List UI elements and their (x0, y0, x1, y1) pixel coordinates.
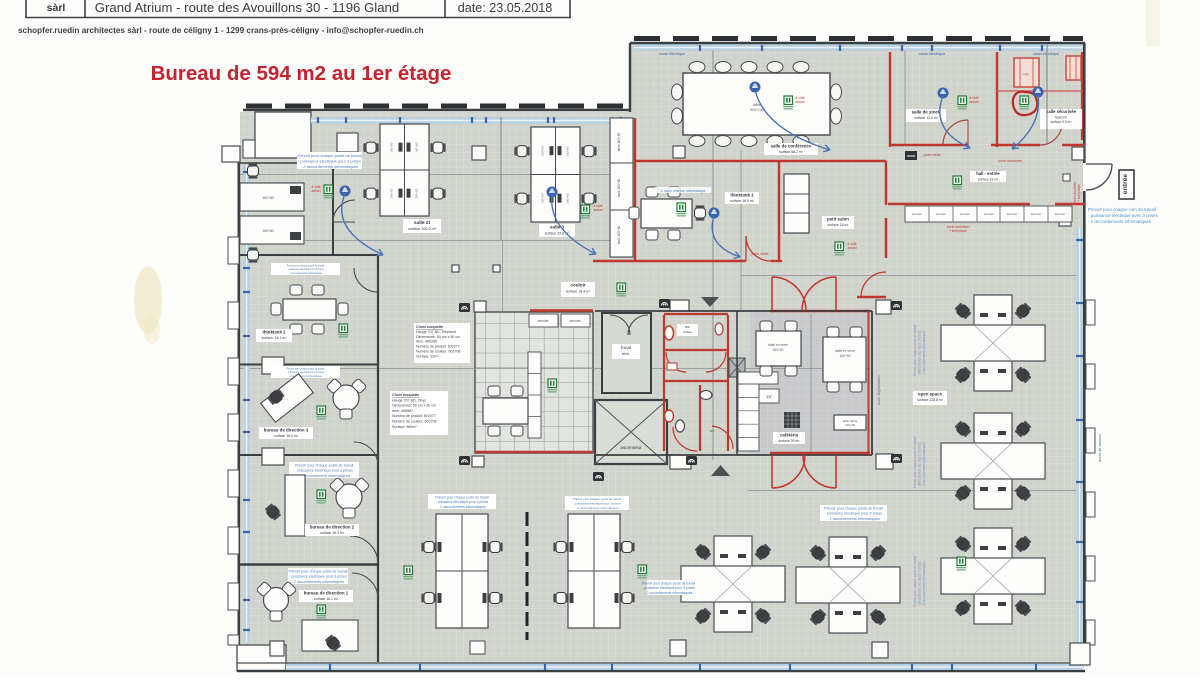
svg-text:Bureau de 594 m2 au 1er étage: Bureau de 594 m2 au 1er étage (151, 62, 452, 85)
svg-text:Hauge 707 BD, Elephant: Hauge 707 BD, Elephant (416, 330, 456, 334)
svg-text:actuel: actuel (795, 100, 804, 104)
svg-text:160+90: 160+90 (840, 354, 851, 358)
svg-text:- alimentation électrique 3 pr: - alimentation électrique 3 prises (917, 330, 921, 376)
svg-text:entrée: entrée (1122, 174, 1129, 195)
svg-text:tech.: tech. (622, 352, 630, 356)
svg-text:surface 12.6 m²: surface 12.6 m² (914, 116, 939, 120)
svg-text:Prévoir pour chaque poste de t: Prévoir pour chaque poste de travail (913, 325, 917, 376)
svg-text:- 2 raccordements informatique: - 2 raccordements informatiques (289, 272, 323, 275)
svg-text:160+80: 160+80 (415, 142, 419, 152)
svg-text:- puissance électrique pour 3: - puissance électrique pour 3 prises (825, 512, 883, 516)
svg-text:armoire: armoire (912, 212, 923, 216)
svg-text:Grand Atrium - route des Avoui: Grand Atrium - route des Avouillons 30 -… (95, 0, 399, 15)
svg-text:Prévoir pour chaque poste de t: Prévoir pour chaque poste de travail (435, 495, 489, 499)
svg-text:160+60: 160+60 (845, 423, 855, 427)
svg-text:- 2 raccordements informatique: - 2 raccordements informatiques (922, 561, 926, 607)
svg-text:surface 58.2 m²: surface 58.2 m² (779, 150, 804, 154)
svg-text:- 2 raccordements informatique: - 2 raccordements informatiques (298, 474, 351, 478)
svg-text:armoire: armoire (1007, 212, 1018, 216)
svg-text:160+80: 160+80 (415, 188, 419, 198)
svg-text:salle sécurisée: salle sécurisée (1046, 109, 1076, 114)
svg-text:surface 18.4 m²: surface 18.4 m² (566, 289, 592, 293)
svg-text:Numéro de produit: 602077: Numéro de produit: 602077 (392, 414, 436, 418)
svg-text:160+80: 160+80 (262, 229, 274, 233)
svg-text:160+90: 160+90 (773, 348, 784, 352)
svg-text:Surface: 560m²: Surface: 560m² (392, 425, 417, 429)
svg-text:- puissance électrique pour 3: - puissance électrique pour 3 prises (287, 268, 325, 271)
svg-text:actuel: actuel (847, 246, 856, 250)
svg-text:Surface: 22m²: Surface: 22m² (416, 354, 439, 358)
svg-text:160+80: 160+80 (541, 146, 545, 156)
svg-text:160+80: 160+80 (262, 196, 274, 200)
svg-text:armoire: armoire (538, 319, 549, 323)
svg-text:- 2 raccordements informatique: - 2 raccordements informatiques (922, 442, 926, 488)
svg-text:Choix moquette: Choix moquette (416, 325, 443, 329)
svg-text:armoire: armoire (1055, 212, 1066, 216)
svg-text:surface 18 m²: surface 18 m² (828, 223, 850, 227)
svg-text:Dimensions: 50 cm x 50 cm: Dimensions: 50 cm x 50 cm (392, 404, 436, 408)
svg-text:surface 23 m²: surface 23 m² (978, 178, 999, 182)
svg-text:- alimentation électrique 3 pr: - alimentation électrique 3 prises (917, 442, 921, 488)
svg-text:- 2 raccordements informatique: - 2 raccordements informatiques (301, 164, 358, 169)
svg-text:Item: 485285: Item: 485285 (416, 340, 437, 344)
svg-text:armoire: armoire (984, 212, 995, 216)
svg-text:Prévoir pour chaque poste de t: Prévoir pour chaque poste de travail (573, 497, 622, 501)
svg-text:invitée: invitée (683, 330, 692, 334)
svg-text:table 160+80: table 160+80 (617, 226, 621, 245)
svg-text:wc: wc (710, 429, 715, 433)
svg-text:rack: rack (1023, 72, 1029, 76)
svg-text:Prévoir pour chaque poste de t: Prévoir pour chaque poste de travail (295, 464, 354, 468)
svg-text:Prévoir pour chaque poste de t: Prévoir pour chaque poste de travail (913, 556, 917, 607)
svg-text:armoire: armoire (1031, 212, 1042, 216)
svg-text:Item: 485587: Item: 485587 (392, 409, 413, 413)
svg-text:table 160+80: table 160+80 (617, 133, 621, 152)
svg-text:porte vitrée: porte vitrée (924, 153, 941, 157)
svg-text:porte vitrée: porte vitrée (752, 252, 769, 256)
svg-text:canal électrique: canal électrique (919, 52, 946, 56)
svg-text:Hauge 707 BD, Onyx: Hauge 707 BD, Onyx (392, 398, 426, 402)
svg-text:date: 23.05.2018: date: 23.05.2018 (458, 1, 553, 15)
svg-text:Choix moquette: Choix moquette (392, 393, 419, 397)
svg-text:cafétéria: cafétéria (780, 432, 799, 437)
svg-text:- alimentation électrique 3 pr: - alimentation électrique 3 prises (917, 561, 921, 607)
svg-text:- puissance électrique pour 3: - puissance électrique pour 3 prises (573, 501, 621, 505)
svg-text:Prévoir pour chaque coin de tr: Prévoir pour chaque coin de travail (1088, 207, 1156, 212)
svg-text:- puissance électrique avec 3: - puissance électrique avec 3 prises (1088, 213, 1159, 218)
svg-text:salle st: salle st (414, 220, 431, 226)
svg-text:actuel: actuel (311, 189, 320, 193)
svg-text:table 160+80: table 160+80 (617, 179, 621, 198)
svg-text:Prévoir pour chaque poste de t: Prévoir pour chaque poste de travail (642, 581, 696, 585)
svg-text:surface 18.9 m²: surface 18.9 m² (730, 199, 755, 203)
svg-text:wc: wc (685, 325, 690, 329)
svg-text:1. sous réserve informatique: 1. sous réserve informatique (660, 189, 705, 193)
svg-text:- puissance électrique pour 3: - puissance électrique pour 3 prises (298, 158, 361, 163)
svg-text:table en verre: table en verre (768, 343, 788, 347)
svg-text:- puissance électrique pour 3: - puissance électrique pour 3 prises (295, 469, 353, 473)
svg-text:+ interphone: + interphone (1077, 184, 1081, 202)
svg-text:- 2 raccordements informatique: - 2 raccordements informatiques (827, 517, 880, 521)
svg-text:surface 16.5 m²: surface 16.5 m² (274, 434, 299, 438)
svg-text:actuel: actuel (593, 208, 602, 212)
svg-text:Numéro de couleur: 602708: Numéro de couleur: 602708 (392, 420, 437, 424)
svg-text:telecom: telecom (1055, 116, 1067, 120)
svg-text:Prévoir pour chaque poste de t: Prévoir pour chaque poste de travail (287, 367, 325, 370)
svg-text:- puissance électrique pour 3: - puissance électrique pour 3 prises (642, 586, 695, 590)
svg-text:- 2 raccordements informatique: - 2 raccordements informatiques (1088, 219, 1152, 224)
svg-text:160+80: 160+80 (390, 188, 394, 198)
svg-text:500+140: 500+140 (750, 108, 763, 112)
svg-text:armoire: armoire (960, 212, 971, 216)
svg-text:canal électrique: canal électrique (1033, 52, 1060, 56)
svg-text:160+80: 160+80 (566, 193, 570, 203)
svg-text:160+80: 160+80 (390, 142, 394, 152)
svg-text:- puissance électrique pour 3: - puissance électrique pour 3 prises (436, 500, 489, 504)
svg-text:armoire: armoire (570, 319, 581, 323)
svg-text:bureau de direction 3: bureau de direction 3 (264, 427, 309, 432)
svg-text:surface 16.3 m²: surface 16.3 m² (320, 531, 345, 535)
svg-text:LV: LV (766, 394, 771, 399)
svg-text:- 2 raccordements informatique: - 2 raccordements informatiques (438, 505, 486, 509)
svg-text:ascenseur: ascenseur (620, 445, 642, 450)
svg-text:surface: 16.1 m²: surface: 16.1 m² (262, 336, 288, 340)
svg-text:couloir: couloir (570, 283, 586, 288)
svg-text:- 2 raccordements informatique: - 2 raccordements informatiques (575, 506, 619, 510)
svg-text:actuel: actuel (969, 100, 978, 104)
svg-text:zone: Digitalisation: zone: Digitalisation (877, 375, 881, 405)
svg-text:schopfer.ruedin architectes sà: schopfer.ruedin architectes sàrl - route… (18, 26, 424, 35)
svg-text:- puissance électrique pour 3: - puissance électrique pour 3 prises (289, 575, 347, 579)
svg-text:Prévoir pour chaque poste de t: Prévoir pour chaque poste de travail (287, 264, 325, 267)
svg-text:+ interphone: + interphone (949, 229, 967, 233)
svg-text:160+80: 160+80 (566, 146, 570, 156)
svg-text:bureau de direction 1: bureau de direction 1 (304, 590, 349, 595)
svg-text:surface 39 m²: surface 39 m² (779, 439, 801, 443)
svg-text:- puissance électrique pour 3: - puissance électrique pour 3 prises (287, 371, 325, 374)
svg-text:thinktank 1: thinktank 1 (730, 192, 754, 197)
svg-text:armoire: armoire (936, 212, 947, 216)
svg-text:- 2 raccordements informatique: - 2 raccordements informatiques (645, 591, 693, 595)
svg-text:petit salon: petit salon (827, 216, 849, 221)
svg-text:Prévoir pour chaque poste de t: Prévoir pour chaque poste de travail (297, 153, 361, 158)
svg-text:Prévoir pour chaque poste de t: Prévoir pour chaque poste de travail (824, 507, 883, 511)
svg-text:surface 9.6 m²: surface 9.6 m² (1051, 120, 1073, 124)
svg-text:table en verre: table en verre (835, 349, 855, 353)
svg-text:local: local (621, 345, 631, 351)
svg-text:salle de stock: salle de stock (912, 109, 941, 114)
svg-text:- 2 raccordements informatique: - 2 raccordements informatiques (922, 330, 926, 376)
svg-text:Numéro de couleur: 602708: Numéro de couleur: 602708 (416, 350, 461, 354)
svg-text:canal électrique: canal électrique (659, 52, 686, 56)
svg-text:Prévoir pour chaque poste de t: Prévoir pour chaque poste de travail (289, 570, 348, 574)
svg-text:Numéro de produit: 602077: Numéro de produit: 602077 (416, 345, 460, 349)
svg-text:salle de conférence: salle de conférence (771, 143, 812, 148)
svg-text:open space: open space (918, 391, 943, 396)
svg-text:- 2 raccordements informatique: - 2 raccordements informatiques (292, 580, 345, 584)
svg-text:Dimensions: 50 cm x 50 cm: Dimensions: 50 cm x 50 cm (416, 335, 460, 339)
svg-text:sàrl: sàrl (47, 2, 66, 14)
svg-text:porte sécurisée: porte sécurisée (998, 159, 1021, 163)
svg-text:Prévoir pour chaque poste de t: Prévoir pour chaque poste de travail (913, 437, 917, 488)
svg-text:surface 16.1 m²: surface 16.1 m² (314, 597, 339, 601)
svg-text:surface 228.8 m²: surface 228.8 m² (917, 398, 944, 402)
svg-text:160+80: 160+80 (541, 193, 545, 203)
svg-text:hall - entrée: hall - entrée (976, 171, 1000, 176)
svg-text:accès de secours: accès de secours (1098, 434, 1102, 462)
svg-text:thinktank 2: thinktank 2 (262, 329, 286, 334)
svg-text:surface 100.9 m²: surface 100.9 m² (408, 227, 437, 231)
svg-text:bureau de direction 2: bureau de direction 2 (310, 524, 355, 529)
